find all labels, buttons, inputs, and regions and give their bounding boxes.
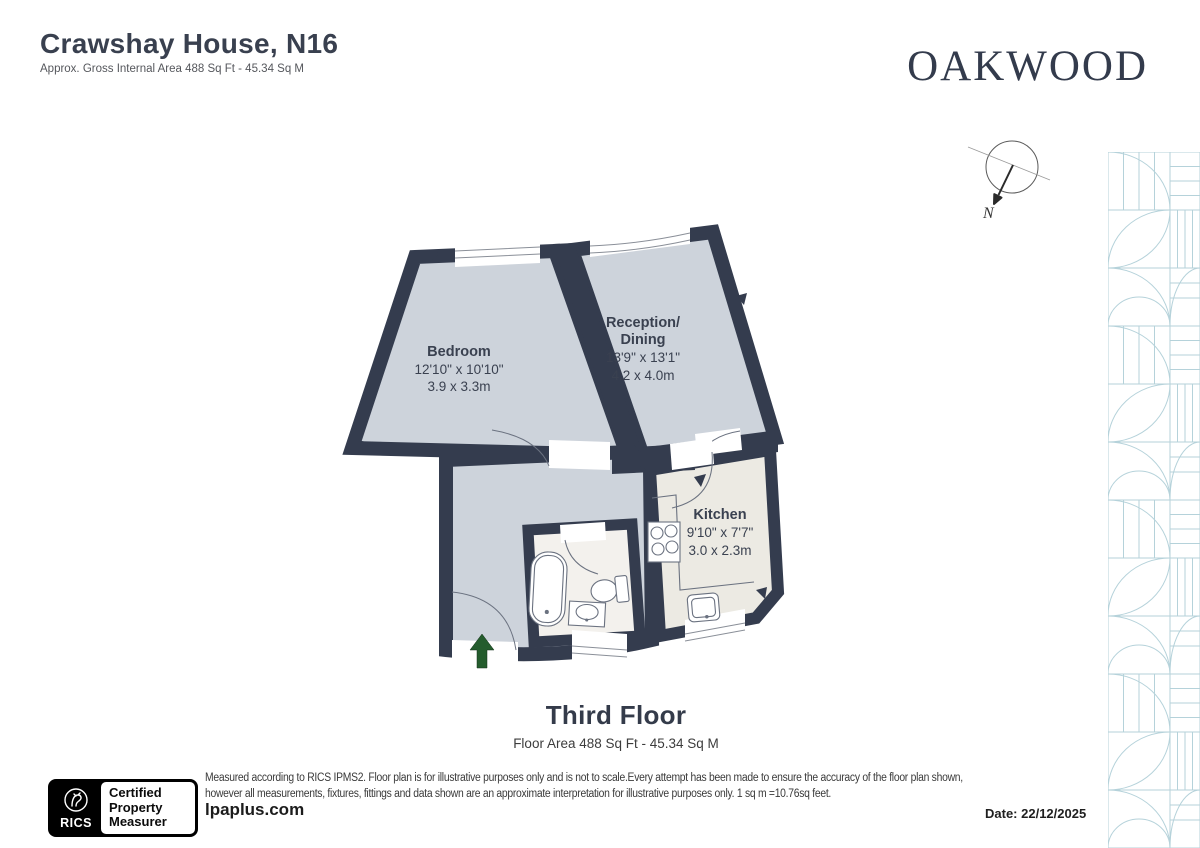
disclaimer-line1: Measured according to RICS IPMS2. Floor … — [205, 770, 963, 786]
website-link[interactable]: lpaplus.com — [205, 800, 304, 820]
bathtub-icon — [528, 551, 568, 627]
reception-label-line1: Reception/ — [606, 315, 680, 331]
hob-icon — [648, 522, 680, 562]
compass-icon: N — [968, 141, 1050, 222]
kitchen-label: Kitchen — [693, 507, 746, 523]
decorative-edge-pattern — [1108, 152, 1200, 848]
badge-line2: Property — [109, 801, 195, 816]
bedroom-metric: 3.9 x 3.3m — [427, 379, 490, 394]
rics-badge: RICS Certified Property Measurer — [48, 779, 198, 837]
floor-title: Third Floor — [416, 700, 816, 731]
disclaimer: Measured according to RICS IPMS2. Floor … — [205, 770, 1047, 802]
kitchen-imperial: 9'10" x 7'7" — [687, 525, 754, 540]
reception-metric: 4.2 x 4.0m — [611, 368, 674, 383]
disclaimer-line2: however all measurements, fixtures, fitt… — [205, 786, 963, 802]
kitchen-metric: 3.0 x 2.3m — [688, 543, 751, 558]
floor-plan: Bedroom 12'10" x 10'10" 3.9 x 3.3m Recep… — [352, 226, 778, 668]
reception-imperial: 13'9" x 13'1" — [606, 350, 680, 365]
compass-north-label: N — [982, 205, 995, 222]
sink-icon — [568, 601, 605, 627]
floorplan-page: Crawshay House, N16 Approx. Gross Intern… — [0, 0, 1200, 848]
rics-org-label: RICS — [60, 816, 92, 830]
reception-label-line2: Dining — [620, 332, 665, 348]
floor-area-subtitle: Floor Area 488 Sq Ft - 45.34 Sq M — [416, 736, 816, 751]
badge-line3: Measurer — [109, 815, 195, 830]
bedroom-imperial: 12'10" x 10'10" — [414, 362, 503, 377]
rics-lion-icon — [61, 787, 91, 815]
date-label: Date: 22/12/2025 — [985, 806, 1086, 821]
badge-line1: Certified — [109, 786, 195, 801]
bedroom-label: Bedroom — [427, 344, 491, 360]
kitchen-sink-icon — [687, 593, 720, 623]
